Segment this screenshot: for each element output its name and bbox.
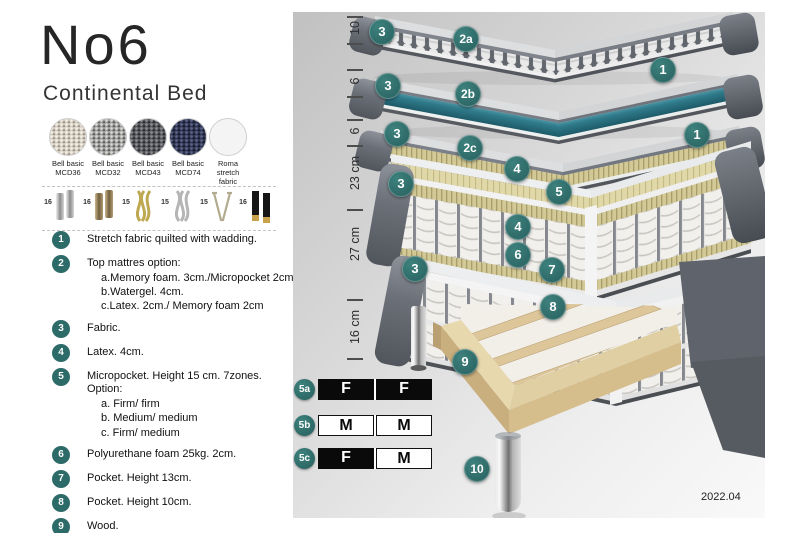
ruler-tick-mark: [347, 96, 363, 98]
feature-text: Micropocket. Height 15 cm. 7zones. Optio…: [87, 368, 300, 440]
feature-number-badge: 2: [52, 255, 70, 273]
feature-text: Wood.: [87, 518, 119, 533]
twist-silver-icon: [170, 189, 196, 228]
diagram-callout-2b: 2b: [455, 81, 481, 107]
cylinder-black-gold-icon: [248, 189, 274, 228]
diagram-callout-8: 8: [540, 294, 566, 320]
ruler-tick-mark: [347, 145, 363, 147]
feature-sub-text: a.Memory foam. 3cm./Micropocket 2cm: [101, 271, 294, 285]
firmness-bar: FM: [318, 448, 432, 469]
firmness-bar: FF: [318, 379, 432, 400]
feature-item: 8Pocket. Height 10cm.: [52, 494, 300, 512]
diagram-callout-3: 3: [375, 73, 401, 99]
feature-number-badge: 9: [52, 518, 70, 533]
fabric-swatch-label: Bell basicMCD36: [48, 159, 88, 177]
diagram-callout-7: 7: [539, 257, 565, 283]
leg-option: 16: [237, 189, 276, 228]
leg-height-label: 16: [44, 199, 52, 206]
feature-item: 5Micropocket. Height 15 cm. 7zones. Opti…: [52, 368, 300, 440]
leg-height-label: 15: [161, 199, 169, 206]
feature-item: 1Stretch fabric quilted with wadding.: [52, 231, 300, 249]
fabric-swatch-row: Bell basicMCD36Bell basicMCD32Bell basic…: [48, 118, 248, 186]
ruler-tick-mark: [347, 16, 363, 18]
fabric-swatch: Bell basicMCD36: [48, 118, 88, 186]
fabric-swatch: Bell basicMCD74: [168, 118, 208, 186]
feature-list: 1Stretch fabric quilted with wadding.2To…: [52, 231, 300, 533]
bed-exploded-illustration: [293, 12, 765, 518]
hairpin-icon: [209, 189, 235, 228]
feature-main-text: Wood.: [87, 520, 119, 533]
ruler-dimension-label: 23 cm: [348, 151, 362, 195]
leg-option: 16: [81, 189, 120, 228]
ruler-tick-mark: [347, 119, 363, 121]
exploded-bed-panel: 106623 cm27 cm16 cm 32a132b132c435467389…: [293, 12, 765, 518]
feature-text: Pocket. Height 10cm.: [87, 494, 192, 512]
diagram-callout-9: 9: [452, 349, 478, 375]
cylinder-bronze-icon: [92, 189, 118, 228]
diagram-callout-2c: 2c: [457, 135, 483, 161]
diagram-callout-6: 6: [505, 242, 531, 268]
fabric-swatch: Romastretch fabric: [208, 118, 248, 186]
fabric-swatch: Bell basicMCD43: [128, 118, 168, 186]
fabric-swatch-circle: [129, 118, 167, 156]
fabric-swatch-circle: [169, 118, 207, 156]
fabric-swatch-circle: [209, 118, 247, 156]
page-title: No6: [40, 12, 152, 77]
leg-options-row: 161615151516: [42, 186, 276, 231]
firmness-cell: M: [318, 415, 374, 436]
leg-option: 15: [198, 189, 237, 228]
fabric-swatch: Bell basicMCD32: [88, 118, 128, 186]
diagram-callout-3: 3: [384, 121, 410, 147]
ruler-tick-mark: [347, 69, 363, 71]
feature-main-text: Top mattres option:: [87, 257, 294, 271]
page-subtitle: Continental Bed: [43, 82, 207, 106]
diagram-callout-4: 4: [504, 156, 530, 182]
firmness-row-badge: 5c: [294, 448, 315, 469]
ruler-tick-mark: [347, 358, 363, 360]
diagram-callout-2a: 2a: [453, 26, 479, 52]
feature-item: 7Pocket. Height 13cm.: [52, 470, 300, 488]
feature-number-badge: 4: [52, 344, 70, 362]
feature-text: Fabric.: [87, 320, 121, 338]
feature-sub-text: c.Latex. 2cm./ Memory foam 2cm: [101, 299, 294, 313]
leg-height-label: 16: [83, 199, 91, 206]
feature-sub-text: b.Watergel. 4cm.: [101, 285, 294, 299]
feature-text: Polyurethane foam 25kg. 2cm.: [87, 446, 236, 464]
diagram-callout-3: 3: [369, 19, 395, 45]
diagram-callout-1: 1: [650, 57, 676, 83]
leg-option: 15: [120, 189, 159, 228]
feature-item: 6Polyurethane foam 25kg. 2cm.: [52, 446, 300, 464]
feature-item: 9Wood.: [52, 518, 300, 533]
firmness-row-badge: 5b: [294, 415, 315, 436]
diagram-callout-5: 5: [546, 179, 572, 205]
feature-number-badge: 5: [52, 368, 70, 386]
cylinder-silver-icon: [53, 189, 79, 228]
leg-height-label: 15: [122, 199, 130, 206]
firmness-row-badge: 5a: [294, 379, 315, 400]
feature-text: Stretch fabric quilted with wadding.: [87, 231, 257, 249]
diagram-callout-3: 3: [388, 171, 414, 197]
feature-number-badge: 1: [52, 231, 70, 249]
leg-height-label: 15: [200, 199, 208, 206]
feature-number-badge: 3: [52, 320, 70, 338]
firmness-cell: F: [318, 379, 374, 400]
feature-item: 2Top mattres option:a.Memory foam. 3cm./…: [52, 255, 300, 314]
feature-item: 3Fabric.: [52, 320, 300, 338]
feature-sub-text: b. Medium/ medium: [101, 411, 300, 425]
feature-number-badge: 6: [52, 446, 70, 464]
firmness-cell: F: [318, 448, 374, 469]
ruler-tick-mark: [347, 209, 363, 211]
firmness-cell: F: [376, 379, 432, 400]
version-label: 2022.04: [701, 491, 761, 503]
diagram-callout-10: 10: [464, 456, 490, 482]
ruler-tick-mark: [347, 299, 363, 301]
ruler-tick-mark: [347, 43, 363, 45]
diagram-callout-1: 1: [684, 122, 710, 148]
feature-main-text: Fabric.: [87, 322, 121, 336]
leg-option: 15: [159, 189, 198, 228]
leg-option: 16: [42, 189, 81, 228]
fabric-swatch-circle: [49, 118, 87, 156]
firmness-cell: M: [376, 448, 432, 469]
feature-main-text: Stretch fabric quilted with wadding.: [87, 233, 257, 247]
diagram-callout-4: 4: [505, 214, 531, 240]
firmness-cell: M: [376, 415, 432, 436]
feature-main-text: Pocket. Height 10cm.: [87, 496, 192, 510]
fabric-swatch-label: Bell basicMCD43: [128, 159, 168, 177]
ruler-dimension-label: 16 cm: [348, 305, 362, 349]
firmness-bar: MM: [318, 415, 432, 436]
feature-main-text: Polyurethane foam 25kg. 2cm.: [87, 448, 236, 462]
feature-item: 4Latex. 4cm.: [52, 344, 300, 362]
feature-main-text: Micropocket. Height 15 cm. 7zones. Optio…: [87, 370, 300, 398]
feature-main-text: Latex. 4cm.: [87, 346, 144, 360]
product-sheet: No6 Continental Bed Bell basicMCD36Bell …: [0, 0, 800, 533]
feature-main-text: Pocket. Height 13cm.: [87, 472, 192, 486]
fabric-swatch-circle: [89, 118, 127, 156]
diagram-callout-3: 3: [402, 256, 428, 282]
leg-height-label: 16: [239, 199, 247, 206]
twist-gold-icon: [131, 189, 157, 228]
fabric-swatch-label: Bell basicMCD74: [168, 159, 208, 177]
fabric-swatch-label: Bell basicMCD32: [88, 159, 128, 177]
feature-sub-text: a. Firm/ firm: [101, 397, 300, 411]
ruler-dimension-label: 27 cm: [348, 222, 362, 266]
fabric-swatch-label: Romastretch fabric: [208, 159, 248, 186]
feature-text: Top mattres option:a.Memory foam. 3cm./M…: [87, 255, 294, 314]
feature-sub-text: c. Firm/ medium: [101, 426, 300, 440]
feature-text: Latex. 4cm.: [87, 344, 144, 362]
feature-number-badge: 7: [52, 470, 70, 488]
feature-text: Pocket. Height 13cm.: [87, 470, 192, 488]
feature-number-badge: 8: [52, 494, 70, 512]
